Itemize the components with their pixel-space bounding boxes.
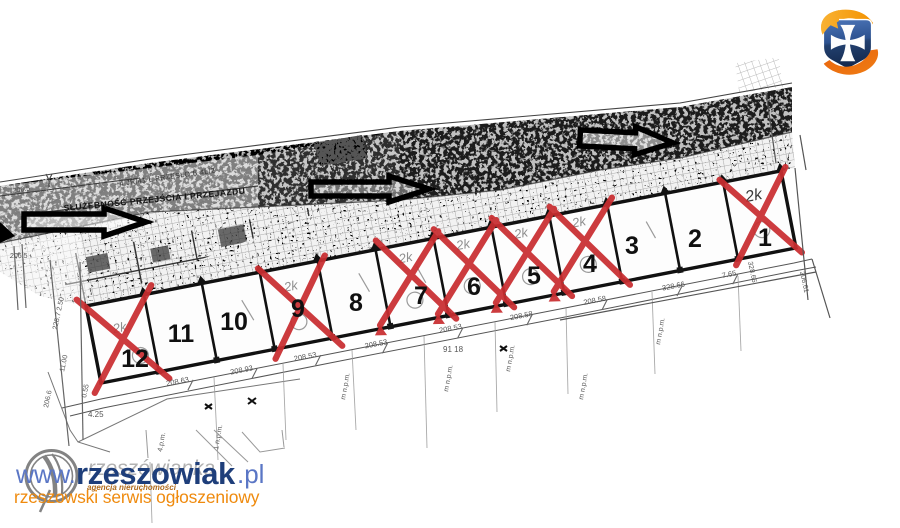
svg-text:6: 6	[467, 273, 481, 301]
svg-text:10: 10	[220, 308, 248, 336]
svg-text:4.25: 4.25	[88, 410, 104, 419]
svg-text:2: 2	[688, 225, 702, 253]
svg-text:8: 8	[349, 289, 363, 317]
svg-text:206.5: 206.5	[10, 253, 28, 260]
svg-text:www.: www.	[15, 461, 76, 489]
svg-text:rzeszowski serwis ogłoszeniowy: rzeszowski serwis ogłoszeniowy	[14, 487, 260, 507]
svg-text:9: 9	[291, 295, 305, 323]
svg-text:7: 7	[414, 282, 428, 310]
svg-text:12: 12	[121, 345, 149, 373]
svg-text:91 18: 91 18	[443, 345, 464, 354]
svg-text:4: 4	[583, 250, 597, 278]
svg-text:1: 1	[758, 224, 772, 252]
svg-text:3: 3	[625, 232, 639, 260]
svg-text:.pl: .pl	[237, 459, 264, 489]
svg-text:5: 5	[527, 262, 541, 290]
svg-text:11: 11	[168, 320, 195, 348]
